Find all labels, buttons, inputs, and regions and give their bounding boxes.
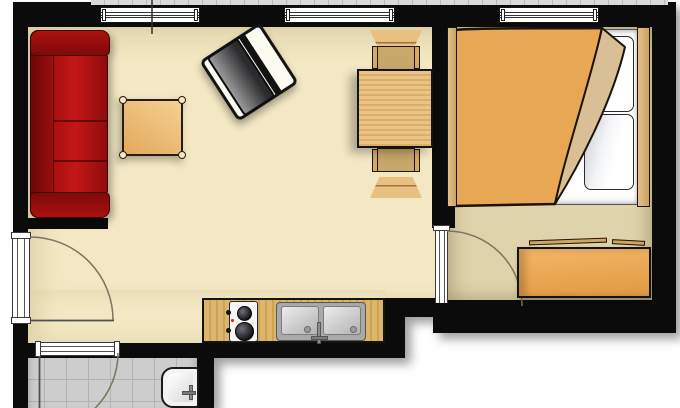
stove-indicator-light — [231, 319, 234, 322]
wall-left-lower — [13, 320, 28, 408]
window-frame-cap — [501, 9, 505, 21]
table-leg — [178, 151, 186, 159]
wall-bathroom-right — [197, 343, 214, 408]
window-frame-cap — [194, 9, 198, 21]
window-frame-cap — [389, 9, 393, 21]
window-3 — [499, 7, 599, 23]
window-frame-cap — [102, 9, 106, 21]
bedroom-door-hinge — [433, 303, 450, 317]
sink-drain — [350, 326, 357, 333]
coffee-table — [122, 99, 183, 156]
bathroom-door-jamb — [114, 341, 120, 357]
bedroom-door-jamb — [433, 225, 450, 231]
wall-bottom-mid — [400, 298, 436, 317]
entry-door-jamb — [11, 232, 31, 239]
sofa-seat-cushions — [53, 54, 108, 194]
bed-frame-rail — [447, 27, 457, 207]
sofa-cushion-seam — [54, 120, 107, 122]
sofa-cushion-seam — [54, 160, 107, 162]
wall-stub-entry — [28, 218, 108, 229]
bed-headboard — [637, 27, 650, 207]
dining-table — [357, 69, 433, 148]
entry-door-jamb — [11, 317, 31, 324]
window-frame-cap — [593, 9, 597, 21]
bedroom-door-leaf — [435, 228, 448, 308]
bathroom-door-jamb — [35, 341, 41, 357]
window-2 — [284, 7, 395, 23]
table-leg — [119, 151, 127, 159]
stove — [229, 301, 258, 342]
dining-chair-top-seat — [377, 46, 415, 70]
duvet-with-folded-corner — [451, 25, 631, 209]
stove-knob — [226, 328, 231, 333]
kitchen-faucet — [317, 322, 321, 344]
stove-knob — [226, 310, 231, 315]
entry-door-opening — [12, 236, 30, 320]
double-bed — [447, 27, 650, 207]
window-1 — [100, 7, 200, 23]
basin-faucet-handle — [182, 391, 196, 395]
bathroom-wash-basin — [161, 367, 199, 408]
wall-right — [652, 27, 676, 333]
sofa-armrest — [30, 30, 110, 56]
stove-burner-large — [235, 322, 254, 341]
table-leg — [178, 96, 186, 104]
wall-bottom-bedroom — [433, 300, 676, 333]
window-frame-cap — [286, 9, 290, 21]
kitchen-faucet-handle — [311, 336, 328, 340]
floor-plan-canvas — [0, 0, 680, 408]
dining-chair-bottom-seat — [377, 148, 415, 172]
wall-left-upper — [13, 27, 28, 236]
sofa-armrest — [30, 192, 110, 218]
outside-balcony-tiles — [91, 0, 668, 5]
stove-burner-small — [237, 306, 252, 321]
bathroom-door-leaf — [38, 342, 118, 356]
table-leg — [119, 96, 127, 104]
red-sofa — [30, 30, 110, 218]
sink-basin-left — [281, 306, 319, 335]
dresser — [517, 247, 651, 298]
sink-drain — [304, 326, 311, 333]
kitchen-counter — [202, 298, 385, 343]
sink-basin-right — [323, 306, 361, 335]
